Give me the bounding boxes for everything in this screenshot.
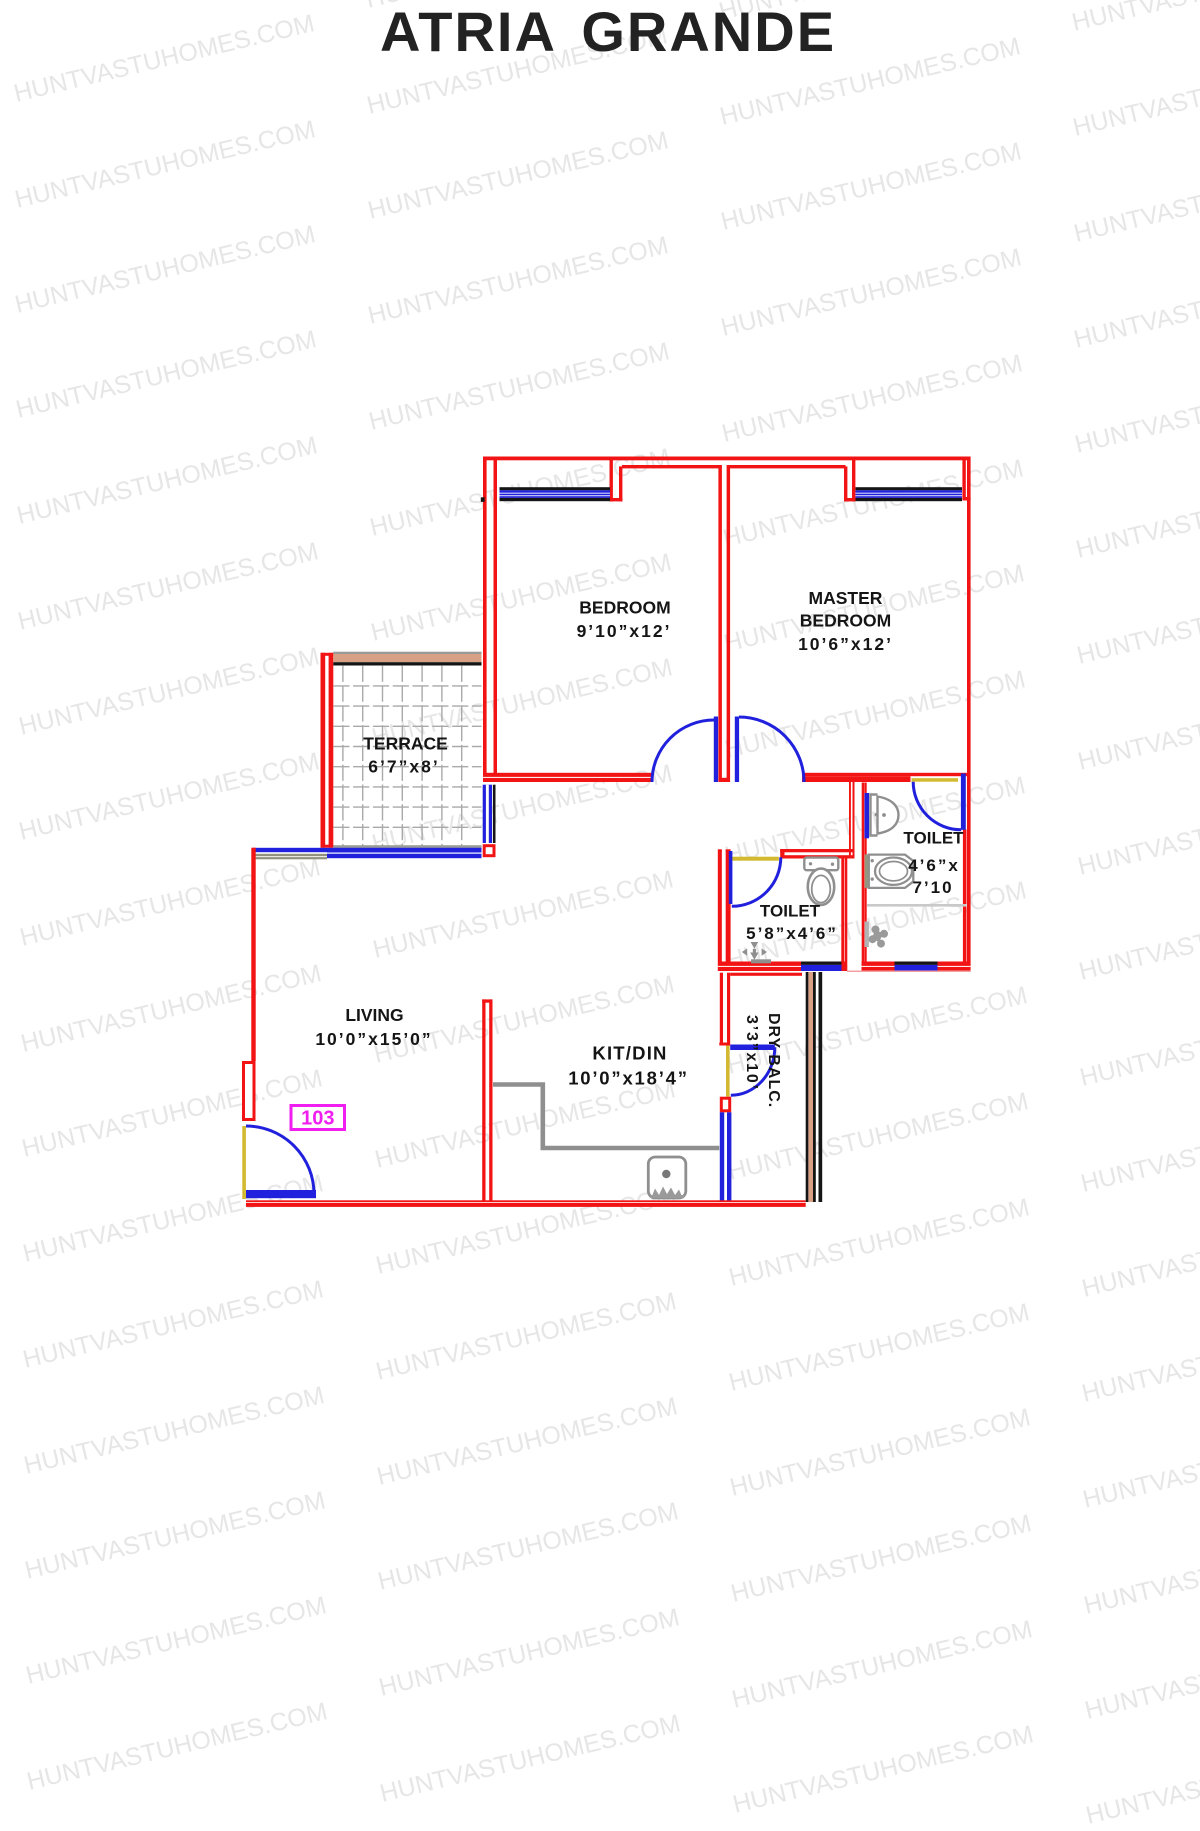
svg-text:6’7”x8’: 6’7”x8’ [368, 757, 439, 777]
svg-text:TOILET: TOILET [760, 902, 821, 921]
svg-text:KIT/DIN: KIT/DIN [592, 1043, 667, 1064]
svg-text:TOILET: TOILET [903, 829, 964, 848]
svg-text:4’6”x: 4’6”x [908, 856, 960, 875]
svg-text:10’6”x12’: 10’6”x12’ [798, 634, 893, 654]
svg-text:3’3”x10’: 3’3”x10’ [743, 1015, 760, 1091]
svg-text:9’10”x12’: 9’10”x12’ [577, 621, 672, 641]
svg-text:10’0”x18’4”: 10’0”x18’4” [568, 1068, 689, 1089]
svg-text:7’10: 7’10 [912, 878, 953, 897]
svg-text:103: 103 [301, 1108, 334, 1130]
svg-text:TERRACE: TERRACE [363, 734, 448, 754]
svg-text:BEDROOM: BEDROOM [800, 611, 891, 631]
svg-text:5’8”x4’6”: 5’8”x4’6” [746, 924, 838, 943]
svg-text:LIVING: LIVING [345, 1005, 403, 1025]
svg-text:MASTER: MASTER [809, 588, 883, 608]
svg-text:10’0”x15’0”: 10’0”x15’0” [315, 1029, 432, 1049]
svg-text:DRY BALC.: DRY BALC. [765, 1013, 782, 1108]
svg-text:BEDROOM: BEDROOM [579, 598, 670, 618]
